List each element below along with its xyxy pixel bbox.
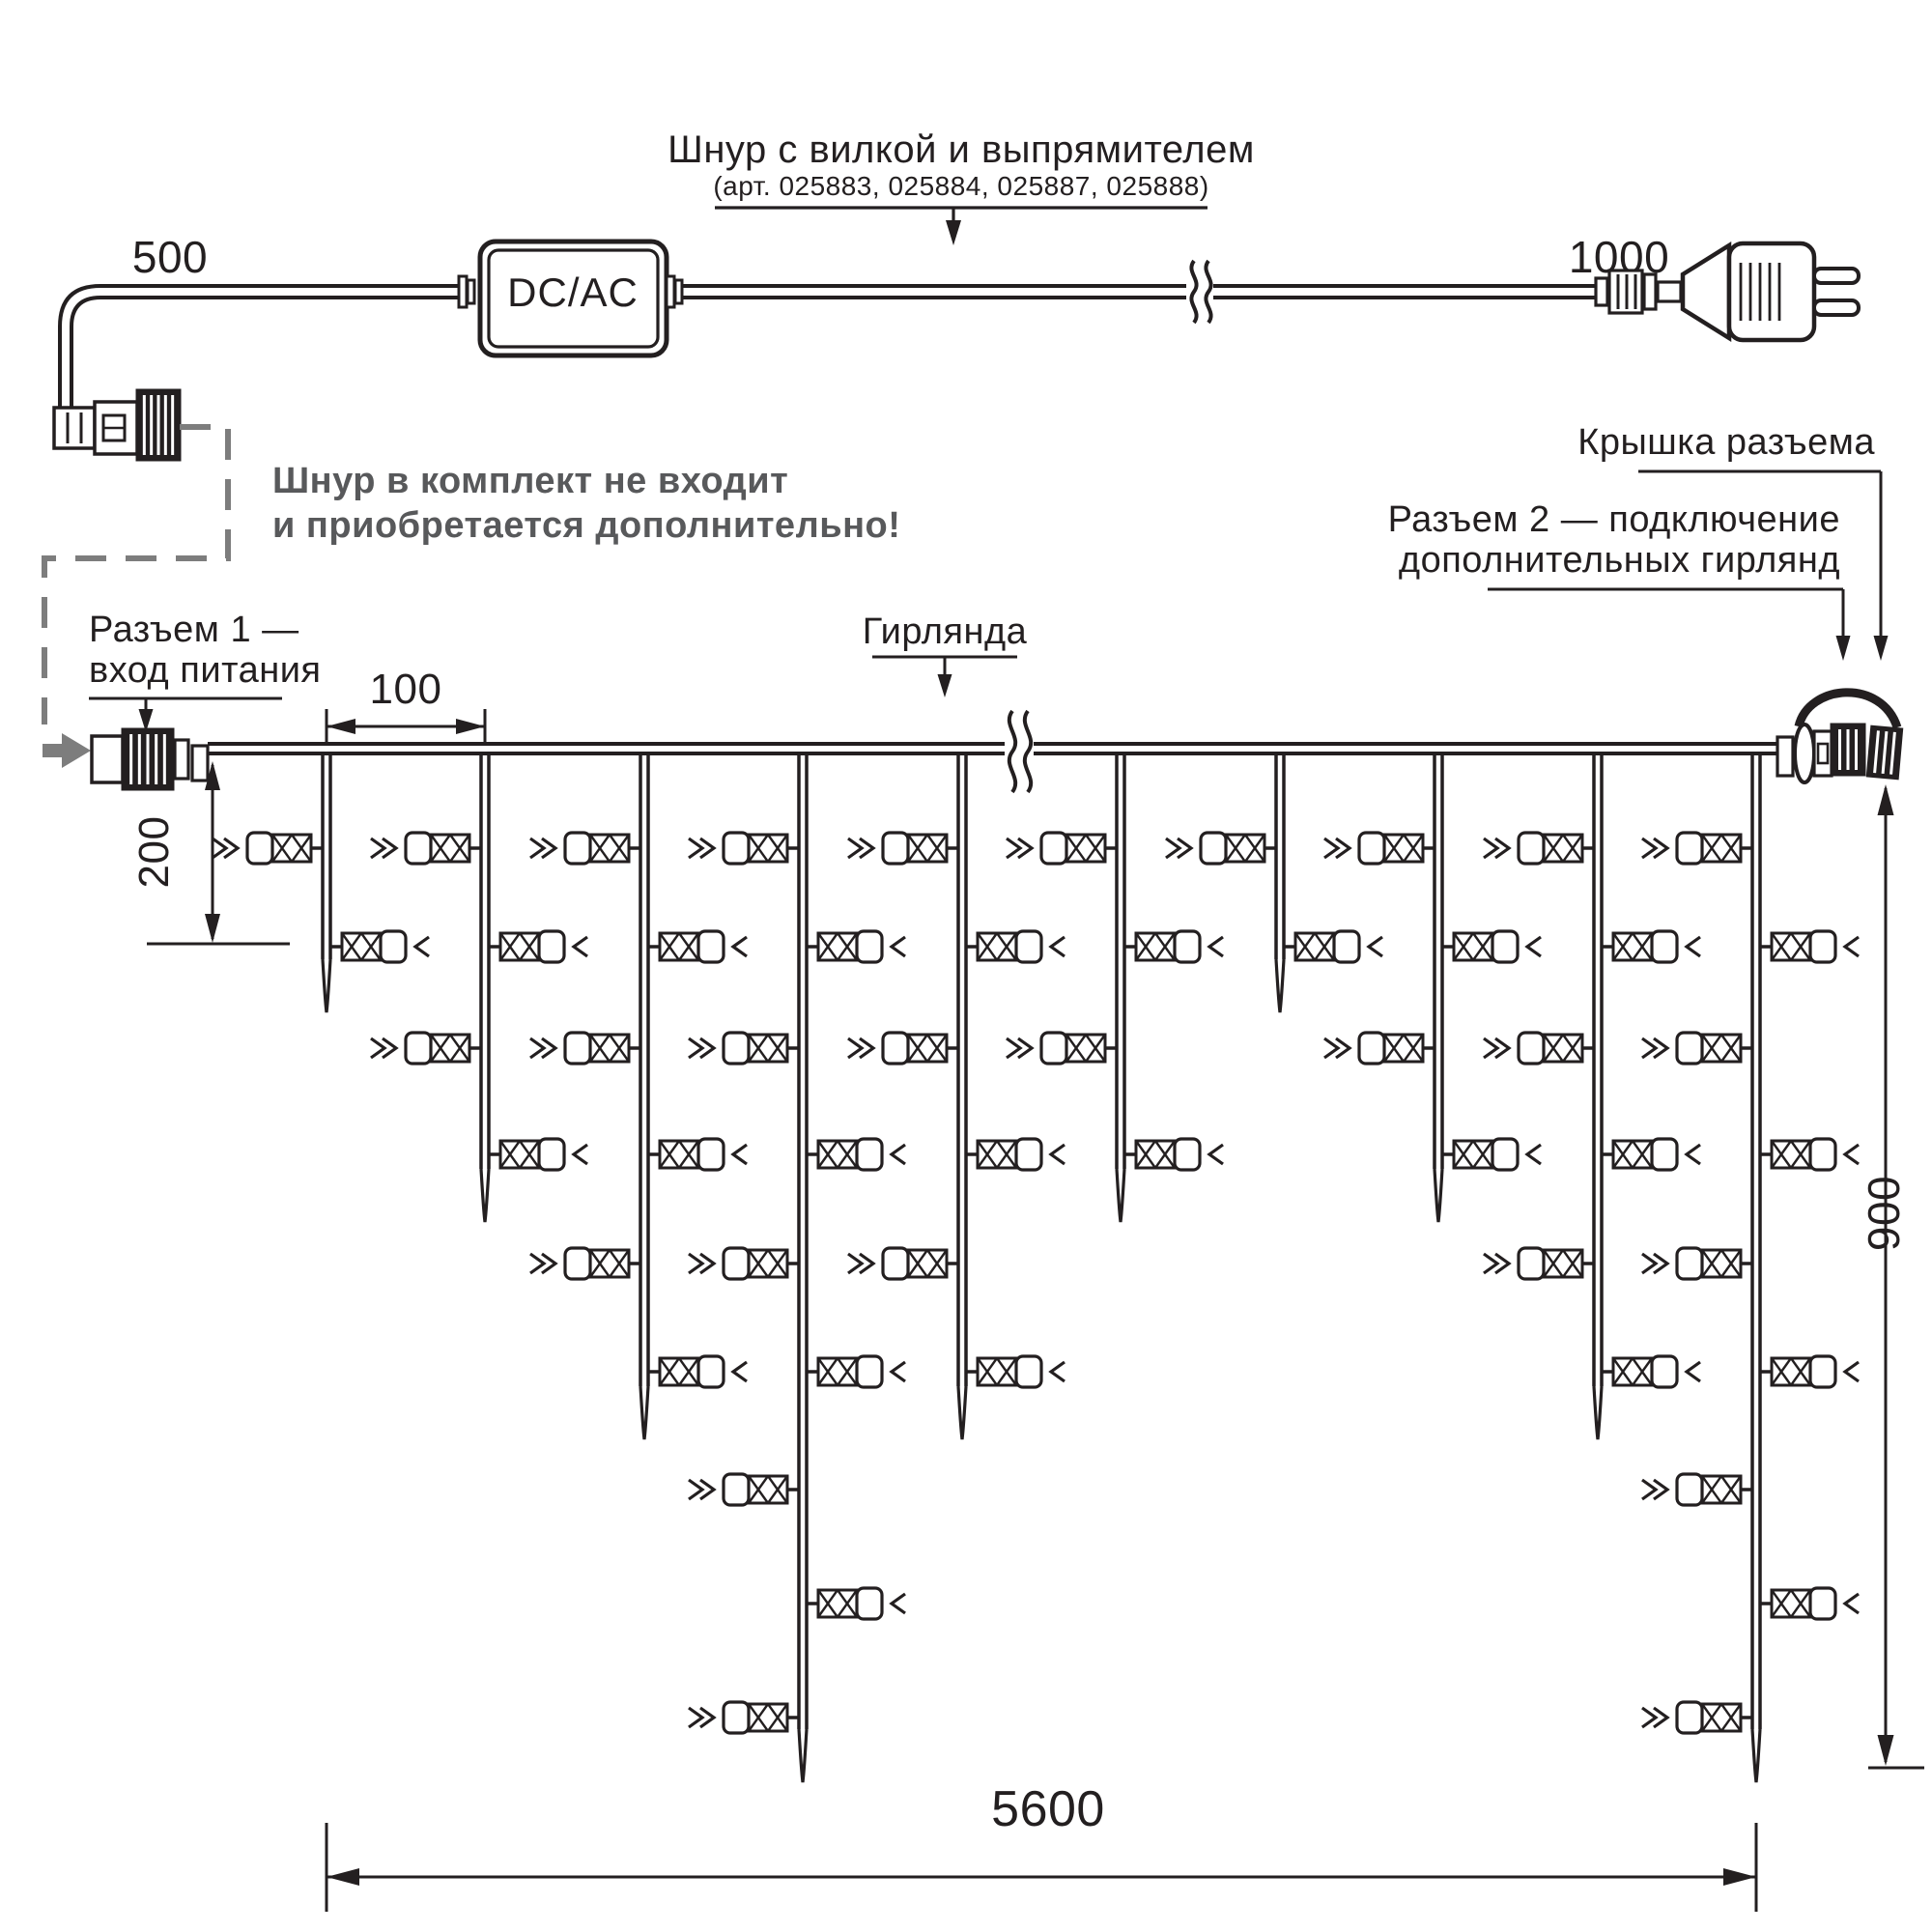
led-bulb-d4-8-body [818,1590,857,1617]
led-bulb-d4-2-ray [892,937,905,956]
led-bulb-d4-4-cap [857,1139,882,1170]
led-bulb-d7-2-body [1295,933,1334,960]
led-bulb-d3-2-ray [733,937,747,956]
led-bulb-d4-6-ray [892,1362,905,1381]
led-bulb-d9-1-ray [1484,838,1497,858]
led-bulb-d4-7-ray [689,1480,702,1499]
note-line2: и приобретается дополнительно! [272,505,900,546]
led-bulb-d2-4-cap [539,1139,564,1170]
dim-900: 900 [1859,1176,1909,1251]
led-bulb-d6-1-ray [1007,838,1020,858]
dim-500: 500 [132,232,208,282]
led-bulb-d6-4-body [1136,1141,1175,1168]
led-bulb-d4-2-body [818,933,857,960]
connector2-label-line1: Разъем 2 — подключение [1388,499,1840,540]
led-bulb-d3-5-ray [530,1254,544,1273]
led-bulb-d8-1-body [1384,835,1423,862]
led-bulb-d9-6-cap [1652,1356,1677,1387]
connector2-arrow [1836,636,1851,661]
led-bulb-d5-3-cap [883,1033,908,1064]
cap-arrow [1874,636,1889,661]
led-bulb-d10-5-cap [1677,1248,1702,1279]
led-bulb-d10-4-cap [1810,1139,1835,1170]
led-bulb-d9-1-cap [1519,833,1544,864]
led-bulb-d10-3-body [1702,1035,1741,1062]
led-bulb-d5-4-body [978,1141,1016,1168]
dim-200-arrow [205,914,220,943]
icicle-drop-tip-4 [799,1729,807,1782]
led-bulb-d5-6-body [978,1358,1016,1385]
dim-100: 100 [370,666,442,713]
dcac-nipple-left2 [459,276,467,307]
icicle-drop-tip-2 [481,1169,489,1222]
led-bulb-d2-1-body [431,835,469,862]
led-bulb-d6-1-body [1066,835,1105,862]
led-bulb-d4-4-ray [892,1145,905,1164]
led-bulb-d8-4-ray [1527,1145,1541,1164]
led-bulb-d6-3-body [1066,1035,1105,1062]
led-bulb-d9-4-body [1613,1141,1652,1168]
led-bulb-d10-8-body [1772,1590,1810,1617]
led-bulb-d10-1-ray [1642,838,1656,858]
led-bulb-d8-3-ray [1324,1038,1338,1058]
led-bulb-d3-1-body [590,835,629,862]
led-bulb-d4-1-ray [689,838,702,858]
dcac-nipple-right2 [675,280,682,303]
led-bulb-d4-1-body [749,835,787,862]
led-bulb-d10-9-cap [1677,1702,1702,1733]
led-bulb-d5-1-ray [848,838,862,858]
led-bulb-d4-3-cap [724,1033,749,1064]
cap-label: Крышка разъема [1577,422,1875,463]
led-bulb-d3-3-cap [565,1033,590,1064]
led-bulb-d9-6-body [1613,1358,1652,1385]
garland-arrow [938,674,952,697]
led-bulb-d9-1-body [1544,835,1582,862]
led-bulb-d3-4-ray [733,1145,747,1164]
cord-connector-grip [54,408,95,448]
led-bulb-d2-3-body [431,1035,469,1062]
led-bulb-d10-6-cap [1810,1356,1835,1387]
icicle-drop-tip-8 [1435,1169,1442,1222]
icicle-drop-tip-7 [1276,959,1284,1012]
led-bulb-d5-2-cap [1016,931,1041,962]
dcac-nipple-left [468,280,474,303]
plug-prong-top [1814,269,1859,283]
led-bulb-d9-2-body [1613,933,1652,960]
led-bulb-d6-2-body [1136,933,1175,960]
dim-200: 200 [130,816,178,889]
plug-joint-collar [1596,278,1607,305]
led-bulb-d9-6-ray [1687,1362,1700,1381]
led-bulb-d4-5-ray [689,1254,702,1273]
led-bulb-d8-2-body [1454,933,1492,960]
led-bulb-d6-1-cap [1041,833,1066,864]
led-bulb-d8-1-ray [1324,838,1338,858]
led-bulb-d8-2-ray [1527,937,1541,956]
led-bulb-d9-5-ray [1484,1254,1497,1273]
cord-break-mark [1191,261,1196,323]
led-bulb-d3-5-body [590,1250,629,1277]
led-bulb-d3-5-cap [565,1248,590,1279]
connector2-cap-group [1866,725,1904,781]
led-bulb-d8-3-body [1384,1035,1423,1062]
led-bulb-d2-1-ray [371,838,384,858]
cord-left-outer [60,286,459,408]
led-bulb-d6-2-ray [1209,937,1223,956]
led-bulb-d10-7-cap [1677,1474,1702,1505]
led-bulb-d8-2-cap [1492,931,1518,962]
led-bulb-d10-2-ray [1845,937,1859,956]
led-bulb-d2-2-ray [574,937,587,956]
led-bulb-d1-1-cap [247,833,272,864]
led-bulb-d1-2-cap [381,931,406,962]
led-bulb-d2-1-cap [406,833,431,864]
plug-body-taper [1683,245,1729,338]
led-bulb-d1-2-ray [415,937,429,956]
led-bulb-d3-6-cap [698,1356,724,1387]
dim-900-arrow [1878,1735,1894,1766]
icicle-drop-tip-5 [958,1386,966,1439]
garland-wiring-diagram: Шнур с вилкой и выпрямителем(арт. 025883… [0,0,1932,1932]
led-bulb-d9-4-cap [1652,1139,1677,1170]
plug-prong-bottom [1814,300,1859,315]
led-bulb-d9-3-cap [1519,1033,1544,1064]
led-bulb-d8-4-cap [1492,1139,1518,1170]
led-bulb-d10-2-cap [1810,931,1835,962]
led-bulb-d10-5-ray [1642,1254,1656,1273]
led-bulb-d4-9-ray [689,1708,702,1727]
led-bulb-d4-8-cap [857,1588,882,1619]
led-bulb-d5-3-body [908,1035,947,1062]
title-arrow [946,220,961,245]
led-bulb-d1-1-ray [213,838,226,858]
led-bulb-d3-1-cap [565,833,590,864]
led-bulb-d9-4-ray [1687,1145,1700,1164]
led-bulb-d10-8-ray [1845,1594,1859,1613]
led-bulb-d8-4-body [1454,1141,1492,1168]
led-bulb-d5-5-cap [883,1248,908,1279]
led-bulb-d6-3-ray [1007,1038,1020,1058]
connector2-cap-strap [1799,693,1897,727]
led-bulb-d4-1-cap [724,833,749,864]
led-bulb-d4-4-body [818,1141,857,1168]
plug-joint-collar2 [1644,274,1656,309]
led-bulb-d3-1-ray [530,838,544,858]
led-bulb-d10-4-body [1772,1141,1810,1168]
led-bulb-d4-5-body [749,1250,787,1277]
garland-connector1-neck [192,746,208,781]
led-bulb-d9-5-body [1544,1250,1582,1277]
led-bulb-d10-9-body [1702,1704,1741,1731]
led-bulb-d3-6-ray [733,1362,747,1381]
led-bulb-d3-2-body [660,933,698,960]
led-bulb-d4-3-ray [689,1038,702,1058]
led-bulb-d4-5-cap [724,1248,749,1279]
led-bulb-d5-6-ray [1051,1362,1065,1381]
dim-5600-arrow [1723,1868,1756,1886]
garland-label: Гирлянда [863,611,1028,652]
icicle-drop-tip-1 [323,959,330,1012]
diagram: Шнур с вилкой и выпрямителем(арт. 025883… [0,0,1932,1932]
led-bulb-d6-4-ray [1209,1145,1223,1164]
led-bulb-d3-4-body [660,1141,698,1168]
led-bulb-d2-3-ray [371,1038,384,1058]
led-bulb-d4-7-cap [724,1474,749,1505]
led-bulb-d10-5-body [1702,1250,1741,1277]
led-bulb-d10-3-ray [1642,1038,1656,1058]
led-bulb-d10-9-ray [1642,1708,1656,1727]
led-bulb-d6-2-cap [1175,931,1200,962]
garland-connector1-plug [92,736,123,782]
led-bulb-d1-2-body [342,933,381,960]
led-bulb-d9-5-cap [1519,1248,1544,1279]
led-bulb-d5-2-body [978,933,1016,960]
led-bulb-d5-5-body [908,1250,947,1277]
led-bulb-d3-4-cap [698,1139,724,1170]
led-bulb-d5-4-cap [1016,1139,1041,1170]
led-bulb-d4-3-body [749,1035,787,1062]
dim-5600-arrow [327,1868,359,1886]
connector1-label-line1: Разъем 1 — [89,610,299,650]
led-bulb-d6-3-cap [1041,1033,1066,1064]
led-bulb-d2-4-ray [574,1145,587,1164]
led-bulb-d4-6-body [818,1358,857,1385]
wire-break-mark [1025,711,1031,792]
led-bulb-d10-1-cap [1677,833,1702,864]
led-bulb-d10-8-cap [1810,1588,1835,1619]
led-bulb-d10-1-body [1702,835,1741,862]
led-bulb-d5-5-ray [848,1254,862,1273]
led-bulb-d9-2-cap [1652,931,1677,962]
led-bulb-d4-2-cap [857,931,882,962]
led-bulb-d7-1-body [1226,835,1264,862]
led-bulb-d5-2-ray [1051,937,1065,956]
dim-5600: 5600 [991,1781,1105,1837]
led-bulb-d6-4-cap [1175,1139,1200,1170]
dim-100-arrow [456,719,485,734]
led-bulb-d2-3-cap [406,1033,431,1064]
led-bulb-d9-2-ray [1687,937,1700,956]
led-bulb-d5-4-ray [1051,1145,1065,1164]
led-bulb-d10-3-cap [1677,1033,1702,1064]
cord-break-mark [1206,261,1210,323]
led-bulb-d10-4-ray [1845,1145,1859,1164]
led-bulb-d10-2-body [1772,933,1810,960]
led-bulb-d1-1-body [272,835,311,862]
led-bulb-d4-6-cap [857,1356,882,1387]
icicle-drop-tip-3 [640,1386,648,1439]
led-bulb-d10-6-body [1772,1358,1810,1385]
led-bulb-d4-9-body [749,1704,787,1731]
connector2-collar-slot [1818,744,1828,763]
led-bulb-d7-1-ray [1166,838,1179,858]
led-bulb-d4-8-ray [892,1594,905,1613]
cord-subtitle: (арт. 025883, 025884, 025887, 025888) [713,171,1208,201]
led-bulb-d5-1-cap [883,833,908,864]
connector2-ring [1795,724,1814,782]
icicle-drop-tip-9 [1594,1386,1602,1439]
led-bulb-d8-3-cap [1359,1033,1384,1064]
wire-break-mark [1009,711,1015,792]
led-bulb-d9-3-ray [1484,1038,1497,1058]
led-bulb-d3-2-cap [698,931,724,962]
garland-connector1-latch [175,740,188,779]
led-bulb-d7-1-cap [1201,833,1226,864]
note-line1: Шнур в комплект не входит [272,461,788,501]
icicle-drop-tip-10 [1752,1729,1760,1782]
led-bulb-d7-2-cap [1334,931,1359,962]
led-bulb-d4-7-body [749,1476,787,1503]
icicle-drop-tip-6 [1117,1169,1124,1222]
dcac-nipple-right [667,276,674,307]
led-bulb-d3-3-body [590,1035,629,1062]
led-bulb-d10-6-ray [1845,1362,1859,1381]
led-bulb-d2-4-body [500,1141,539,1168]
not-included-arrow [43,733,91,768]
led-bulb-d5-3-ray [848,1038,862,1058]
led-bulb-d3-3-ray [530,1038,544,1058]
connector1-label-line2: вход питания [89,650,322,691]
plug-joint-neck [1658,282,1681,301]
led-bulb-d8-1-cap [1359,833,1384,864]
led-bulb-d9-3-body [1544,1035,1582,1062]
led-bulb-d7-2-ray [1369,937,1382,956]
led-bulb-d10-7-body [1702,1476,1741,1503]
garland-connector2-latch [1777,737,1793,776]
dcac-label: DC/AC [507,270,639,315]
led-bulb-d2-2-cap [539,931,564,962]
led-bulb-d3-6-body [660,1358,698,1385]
led-bulb-d10-7-ray [1642,1480,1656,1499]
dim-900-arrow [1878,784,1894,815]
connector2-label-line2: дополнительных гирлянд [1399,540,1840,581]
led-bulb-d4-9-cap [724,1702,749,1733]
cord-left-inner [71,298,459,408]
led-bulb-d5-6-cap [1016,1356,1041,1387]
led-bulb-d2-2-body [500,933,539,960]
dim-100-arrow [327,719,355,734]
cord-title: Шнур с вилкой и выпрямителем [668,128,1255,171]
led-bulb-d5-1-body [908,835,947,862]
